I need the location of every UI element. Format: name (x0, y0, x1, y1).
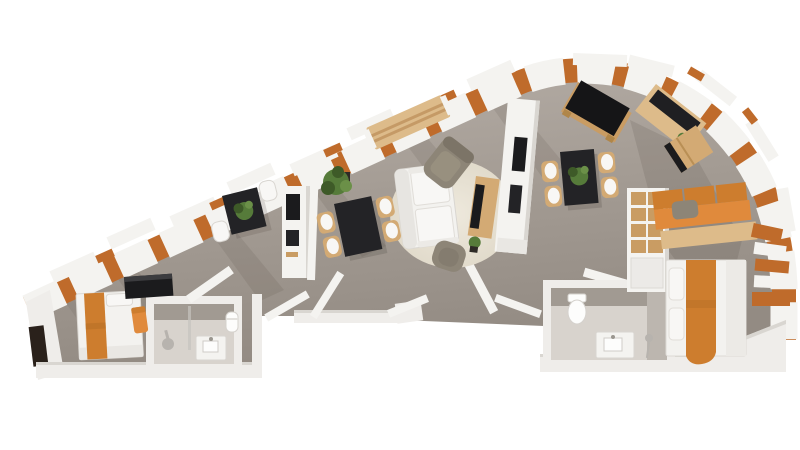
shower-head-right (645, 334, 653, 342)
floorplan-svg (0, 0, 800, 450)
bed-right-duvet-fold (726, 260, 746, 356)
shelving-cubby (631, 192, 646, 205)
sink-faucet-left (209, 337, 213, 341)
kitchen-wood-shelf (286, 252, 298, 257)
sink-faucet-right (611, 335, 615, 339)
plant-foliage (321, 181, 335, 195)
kitchen-oven (286, 194, 300, 220)
bed-right-orange-throw (686, 260, 716, 364)
bed-left (76, 291, 143, 360)
floorplan-render (0, 0, 800, 450)
toilet-right-bowl (568, 300, 586, 324)
roof-dormer-panel (573, 53, 627, 67)
kitchen-appliance (286, 230, 299, 246)
bed-right (666, 260, 746, 364)
bed-right-throw-fold (686, 300, 716, 308)
roof-window-white (754, 275, 789, 289)
center-bottom-wall-top-edge (294, 310, 400, 313)
bathroom-right-side-shadow (647, 288, 667, 360)
daybed-orange (652, 182, 758, 250)
daybed-grey-pillow (671, 199, 699, 220)
small-plant-pot (469, 246, 478, 253)
shelving-cubby (631, 224, 646, 237)
shelving-cubby (631, 208, 646, 221)
shelving-cubby (648, 240, 663, 253)
shelving-cubby (631, 240, 646, 253)
toilet-left (226, 312, 238, 332)
roof-window-orange (752, 292, 790, 306)
left-unit-partition-wall (252, 294, 262, 366)
toilet-left-seat-line (226, 318, 238, 320)
daybed-back-cushion (716, 182, 748, 203)
tv-sideboard-left (124, 274, 173, 299)
plant-foliage (332, 166, 344, 178)
bed-left-runner-fold (86, 322, 106, 329)
bed-right-pillow (669, 308, 684, 340)
tall-cabinet-base (497, 238, 528, 255)
kitchen-unit (282, 186, 310, 278)
bed-right-pillow (669, 268, 684, 300)
sink-basin-left (203, 341, 218, 352)
sink-basin-right (604, 338, 622, 351)
shower-glass-left (188, 306, 191, 350)
tall-cabinet-glass (508, 185, 522, 214)
shelving-door (631, 258, 663, 288)
bathroom-left-wall-shadow (154, 304, 234, 320)
plant-foliage (340, 180, 352, 192)
sofa-cushion (415, 205, 455, 243)
